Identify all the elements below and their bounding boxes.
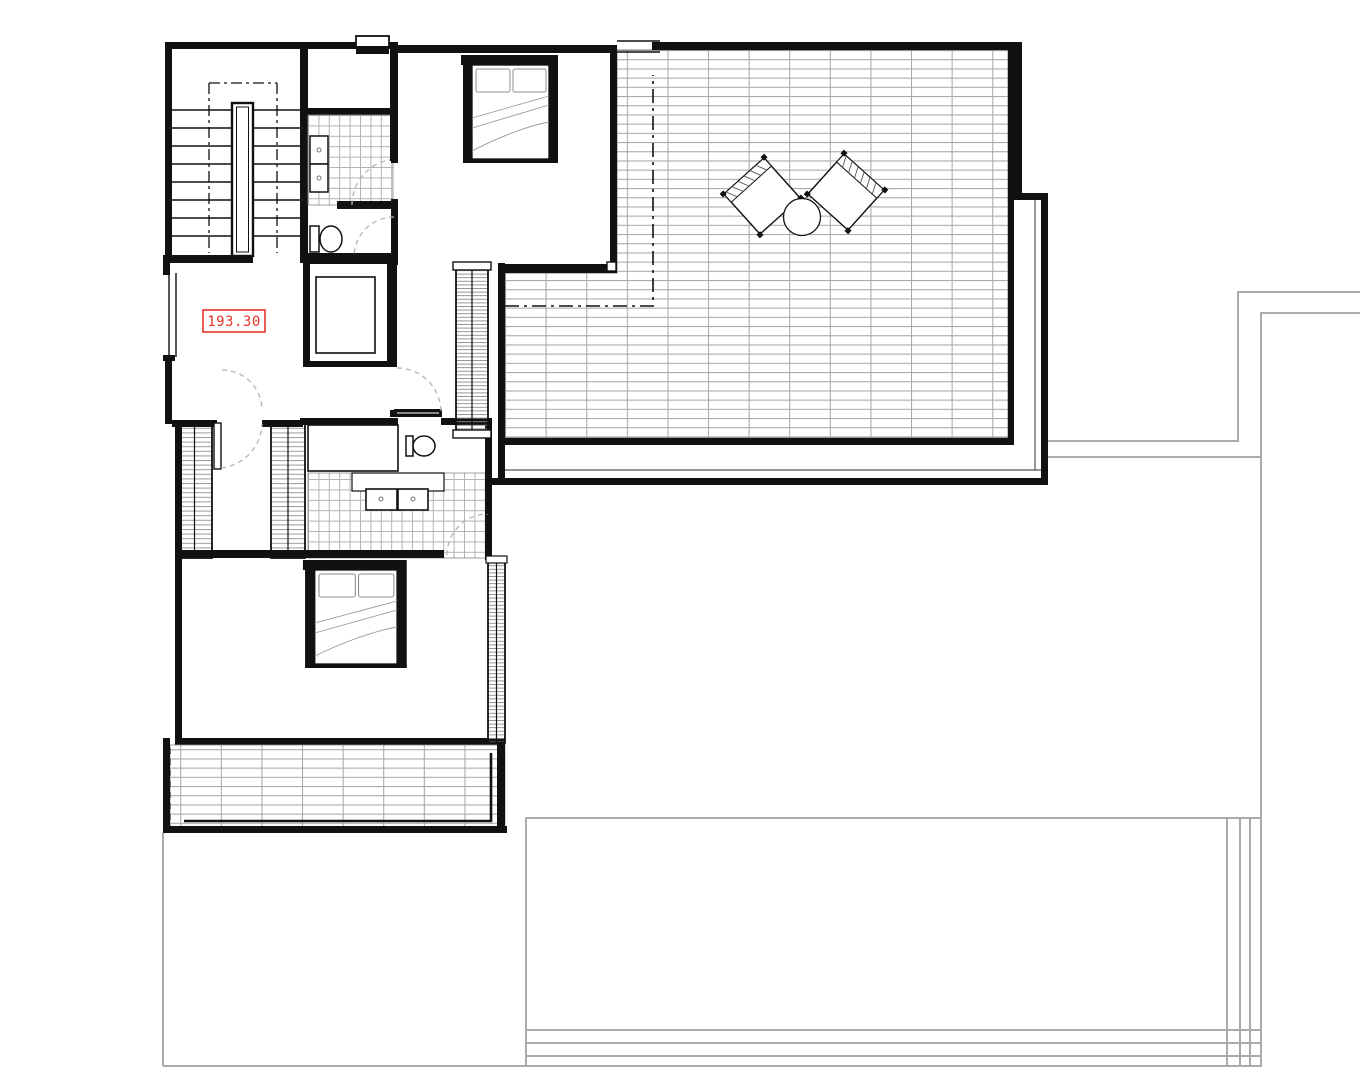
terrace-parapet-south-outer <box>490 478 1048 485</box>
bedroom-2-wall-north <box>182 550 444 558</box>
closet-room <box>305 108 393 115</box>
terrace-parapet-south-inner <box>498 438 1014 445</box>
door-swing-arc <box>354 217 394 256</box>
lower-roof-outline-inner <box>1047 313 1360 457</box>
wardrobe-icon <box>177 424 212 558</box>
toilet-icon <box>310 226 342 252</box>
terrace <box>490 41 1048 485</box>
door-swing-arc <box>221 424 262 468</box>
pool-steps-right <box>1227 818 1250 1066</box>
double-bed-icon <box>303 560 407 668</box>
flue-shaft <box>356 36 389 54</box>
bathroom-2-wall-north <box>300 418 398 425</box>
hallway: 193.30 <box>163 258 442 424</box>
terrace-parapet-inner <box>1008 50 1014 440</box>
bedroom-2-wall-west <box>175 424 182 742</box>
column-marker <box>607 262 616 271</box>
deck-wall-south <box>163 826 507 833</box>
terrace-wall-west <box>498 263 505 480</box>
wc-room <box>300 211 398 265</box>
pool-rect <box>526 818 1261 1066</box>
terrace-wall-north <box>652 42 1022 50</box>
sink-icon <box>366 489 397 510</box>
bedroom-2-wall-south <box>175 738 505 745</box>
door-swing-arc <box>397 368 441 412</box>
level-label-text: 193.30 <box>207 314 261 330</box>
lower-roof-outline-outer <box>1047 292 1360 441</box>
floor-plan-drawing: 193.30 <box>0 0 1360 1080</box>
sink-icon <box>310 164 328 192</box>
wall-stub <box>485 478 492 514</box>
bedroom-1 <box>390 45 617 273</box>
side-table-icon <box>784 199 821 236</box>
toilet-icon <box>406 436 435 456</box>
door-leaf <box>214 423 221 469</box>
bedroom-1-wall-east <box>610 50 617 267</box>
window-glazing <box>169 273 176 357</box>
terrace-wall-east-upper <box>1014 42 1022 199</box>
closet-wall-south <box>305 108 393 115</box>
louver-screen-icon <box>486 556 507 743</box>
wall-stairs-east <box>300 42 308 263</box>
bedroom-2 <box>175 424 507 745</box>
floor-plan-canvas: 193.30 <box>0 0 1360 1080</box>
sink-icon <box>398 489 428 510</box>
sink-icon <box>310 136 328 164</box>
bedroom-1-wall-south <box>503 264 617 273</box>
stair-stringer-inner <box>237 107 249 252</box>
bedroom-1-wall-west <box>390 53 398 161</box>
bathroom-1 <box>308 108 398 213</box>
deck-tiles <box>170 745 505 828</box>
wall-west-lower <box>165 359 172 424</box>
sliding-door <box>390 409 442 417</box>
balcony-deck <box>163 738 507 833</box>
wardrobe-icon <box>271 424 305 558</box>
door-swing-arc <box>222 370 262 410</box>
pool-steps-bottom <box>526 1030 1261 1056</box>
bathroom-2 <box>300 418 492 560</box>
deck-wall-west <box>163 738 170 833</box>
pool-outline <box>526 818 1261 1066</box>
double-bed-icon <box>461 55 558 163</box>
deck-wall-east <box>497 742 505 833</box>
shower-icon <box>303 258 397 367</box>
vanity-counter <box>308 425 398 471</box>
louver-screen-icon <box>453 262 491 438</box>
dressing-area <box>172 420 305 558</box>
bathroom-1-wall-south <box>337 201 398 209</box>
terrace-wall-east-lower <box>1041 193 1048 485</box>
bedroom-1-wall-north <box>390 45 617 53</box>
wall-west-stairs <box>165 42 172 257</box>
level-label: 193.30 <box>203 310 265 332</box>
terrace-tiles <box>505 50 1008 438</box>
